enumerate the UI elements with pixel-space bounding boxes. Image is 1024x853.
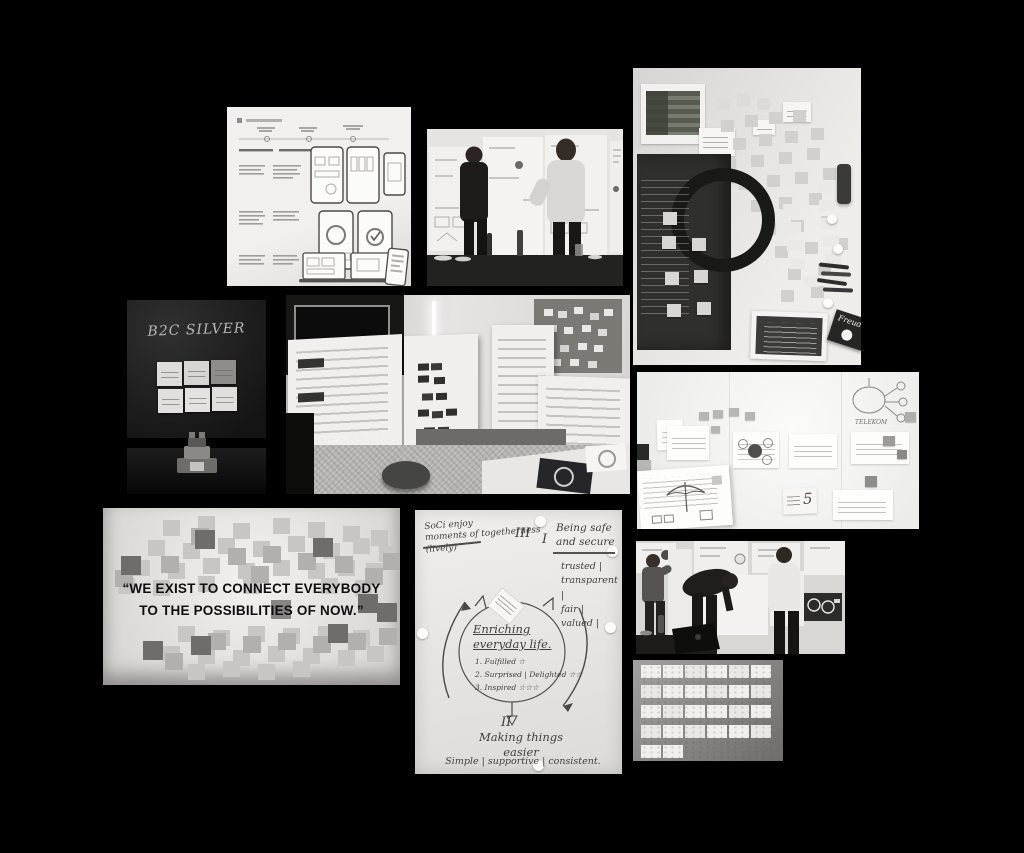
bottom-values: Simple | supportive | consistent. [443, 756, 603, 767]
marker-pen [819, 262, 849, 269]
sticky-note [212, 387, 237, 411]
enriching-item1: 1. Fulfilled ☆ [475, 656, 582, 669]
pinned-paper [667, 426, 709, 460]
schedule-table-column [646, 91, 668, 135]
enriching-line2: everyday life. [473, 637, 552, 652]
sticky-note [694, 270, 708, 283]
gray-sticky [713, 410, 723, 418]
poster-text-lines [641, 180, 689, 320]
lego-model-top [188, 438, 206, 447]
whiteboard-eraser [837, 164, 851, 204]
gray-sticky [745, 412, 755, 420]
lego-knob [199, 432, 205, 438]
gray-sticky [699, 412, 709, 420]
sticky-note-cluster-dark [103, 508, 123, 527]
freude-card-label: Freude [837, 313, 861, 331]
pinned-paper [851, 432, 909, 464]
pinned-paper [833, 490, 893, 520]
board-dark-chip [298, 358, 324, 368]
number-five-sticky: 5 [783, 487, 818, 514]
storyboard-sketch-texture [641, 665, 773, 759]
lego-model-label [190, 462, 204, 471]
sticky-note [157, 362, 182, 386]
circle-diagram-sketch [737, 434, 777, 468]
freude-card: Freude [827, 309, 861, 351]
magazine-ring-graphic [597, 449, 616, 468]
agenda-dark-card [755, 316, 822, 356]
gray-sticky [905, 412, 916, 422]
board-dark-chip [298, 392, 324, 402]
three-people-illustration [636, 541, 845, 654]
roman-numeral-two: II [501, 715, 511, 730]
sticky-note [158, 389, 183, 413]
gray-sticky [883, 436, 895, 446]
photo-purpose-quote: “WE EXIST TO CONNECT EVERYBODY TO THE PO… [103, 508, 400, 685]
handwritten-note [753, 120, 775, 135]
magazine-ring-graphic [553, 466, 575, 488]
purpose-statement-line1: “WE EXIST TO CONNECT EVERYBODY [103, 578, 400, 600]
gray-sticky [729, 408, 739, 416]
photo-b2c-silver-board: B2C SILVER [127, 300, 266, 494]
two-people-illustration [427, 129, 623, 286]
handwritten-note [783, 102, 811, 122]
sticky-note [692, 238, 706, 251]
enriching-heading: Enriching everyday life. [473, 622, 552, 652]
sticky-note [667, 304, 681, 317]
pinboard-cards [534, 299, 543, 306]
photo-wireframe-sketches [227, 107, 411, 286]
dark-floor-strip [416, 429, 566, 445]
photo-flipchart-diagram: SoCi enjoy moments of togetherness (live… [415, 510, 622, 774]
wireframe-sketches-illustration [227, 107, 411, 286]
freude-card-circle [840, 328, 854, 342]
enriching-list: 1. Fulfilled ☆ 2. Surprised | Delighted … [475, 656, 582, 694]
enriching-item2: 2. Surprised | Delighted ☆☆ [475, 669, 582, 682]
sticky-note [663, 212, 677, 225]
magnet [827, 214, 837, 224]
photo-three-people-review [636, 541, 845, 654]
handwriting-scribble [787, 496, 800, 506]
photo-two-people-whiteboard [427, 129, 623, 286]
magazine-light [585, 444, 627, 473]
sticky-note [184, 361, 209, 385]
gray-sticky [897, 450, 907, 459]
schedule-sheet [641, 84, 705, 144]
easier-line1: Making things [471, 730, 571, 745]
photo-sticky-note-wall: Freude [633, 68, 861, 365]
dark-poster [637, 154, 731, 350]
magazine-dark [536, 458, 593, 494]
umbrella-sketch [637, 465, 733, 529]
lego-knob [189, 432, 195, 438]
sticky-note [697, 302, 711, 315]
sticky-note-dark [211, 360, 236, 384]
marker-pen [817, 278, 847, 286]
gray-sticky [865, 476, 877, 487]
photo-war-room [286, 295, 630, 494]
number-five-label: 5 [803, 490, 813, 508]
black-chair [286, 413, 314, 494]
photo-storyboard-grid [633, 660, 783, 761]
marker-pen [823, 287, 853, 292]
sticky-note [185, 388, 210, 412]
agenda-sheet [750, 311, 828, 362]
white-card-column [633, 68, 649, 79]
photo-whiteboard-papers: TELEKOM 5 [637, 372, 919, 529]
sticky-note [662, 236, 676, 249]
purpose-statement: “WE EXIST TO CONNECT EVERYBODY TO THE PO… [103, 578, 400, 621]
umbrella-sketch-board [637, 465, 733, 529]
board-thumbnail-cluster [404, 336, 415, 343]
b2c-silver-title: B2C SILVER [127, 320, 266, 341]
lego-model-middle [184, 446, 210, 459]
gray-stool [382, 461, 430, 489]
telekom-label: TELEKOM [855, 419, 888, 426]
purpose-statement-line2: TO THE POSSIBILITIES OF NOW.” [103, 600, 400, 622]
magnet [833, 244, 843, 254]
marker-pen [821, 271, 851, 277]
sticky-note [665, 272, 679, 285]
enriching-item3: 3. Inspired ☆☆☆ [475, 682, 582, 695]
enriching-line1: Enriching [473, 622, 552, 637]
gray-sticky [711, 426, 720, 433]
magnet [823, 298, 833, 308]
handwritten-note [699, 128, 735, 156]
photo-collage: Freude B2C SILVER [0, 0, 1024, 853]
pinned-paper [789, 434, 837, 468]
